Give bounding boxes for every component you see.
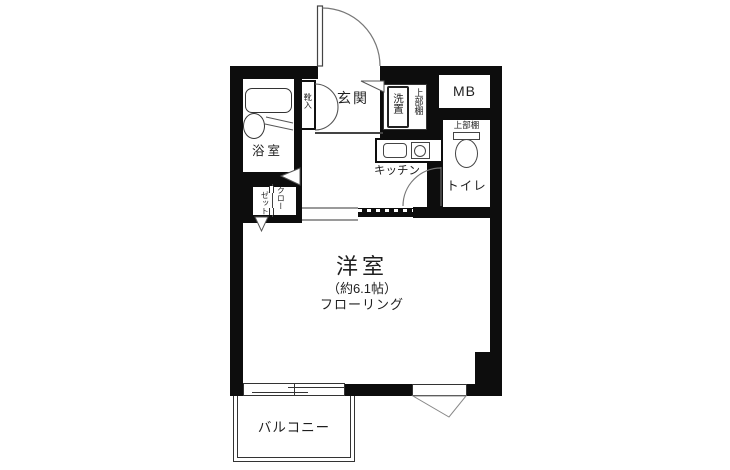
shoe-cabinet-door-arc-top [315, 84, 338, 107]
western-room-size-label: （約6.1帖） [281, 282, 443, 296]
western-room-label: 洋室 [281, 255, 443, 278]
washer-space-label: 洗置 [392, 93, 403, 114]
casement-window-swing [413, 396, 466, 417]
shoe-cabinet-label: 靴入 [303, 93, 311, 109]
shelf-above-toilet-label: 上部棚 [443, 120, 490, 131]
closet-label-right: クロー [276, 186, 284, 210]
floor-plan: 玄関 靴入 洗置 上部棚 MB 上部棚 トイレ キッチン 浴室 クロー ゼット … [0, 0, 730, 470]
western-room-flooring-label: フローリング [281, 298, 443, 312]
shelf-above-washer-label: 上部棚 [413, 88, 422, 115]
entrance-label: 玄関 [337, 91, 369, 106]
bathroom-label: 浴室 [252, 145, 283, 158]
kitchen-label: キッチン [374, 165, 420, 177]
bath-counter-edge-bottom [265, 124, 293, 130]
bath-counter-edge-top [266, 117, 293, 123]
meter-box-label: MB [439, 75, 490, 108]
balcony-label: バルコニー [233, 419, 355, 437]
closet-label-left: ゼット [260, 191, 268, 215]
entrance-door-swing-arc [323, 8, 381, 66]
bathroom-door-marker [281, 168, 300, 185]
closet-door-marker [255, 217, 268, 231]
entrance-door-leaf [318, 6, 323, 66]
western-room-label-block: 洋室 （約6.1帖） フローリング [281, 255, 443, 311]
fixtures-overlay [0, 0, 730, 470]
shoe-cabinet-door-arc-bottom [315, 107, 338, 130]
toilet-label: トイレ [443, 179, 490, 195]
